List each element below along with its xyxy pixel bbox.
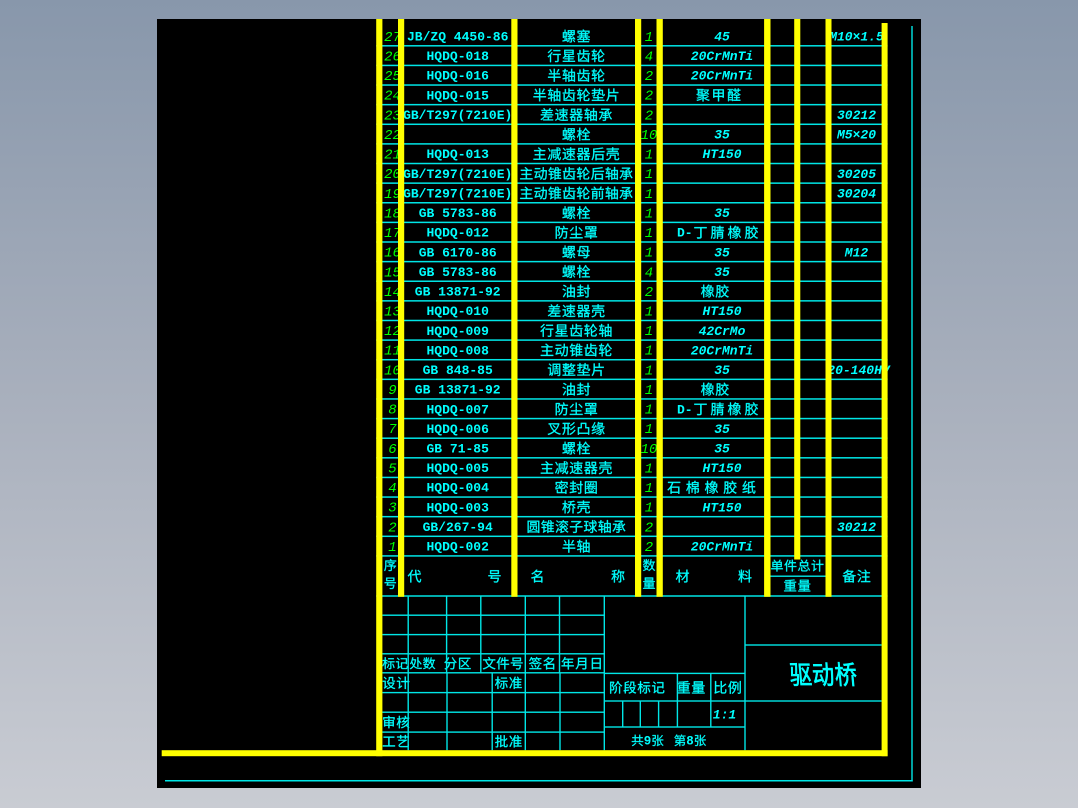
svg-text:4: 4 bbox=[645, 49, 653, 65]
svg-text:35: 35 bbox=[714, 422, 730, 437]
svg-text:GB 13871-92: GB 13871-92 bbox=[415, 383, 501, 398]
svg-text:4: 4 bbox=[645, 265, 653, 281]
svg-text:HQDQ-007: HQDQ-007 bbox=[426, 402, 488, 417]
svg-text:30205: 30205 bbox=[837, 167, 876, 182]
svg-text:GB 6170-86: GB 6170-86 bbox=[419, 245, 497, 260]
svg-text:HT150: HT150 bbox=[702, 304, 741, 319]
svg-text:10: 10 bbox=[641, 128, 658, 144]
svg-text:8: 8 bbox=[686, 735, 694, 749]
svg-text:1: 1 bbox=[645, 481, 653, 497]
svg-text:1: 1 bbox=[645, 187, 653, 203]
svg-text:2: 2 bbox=[645, 285, 653, 301]
svg-text:1: 1 bbox=[645, 383, 653, 399]
svg-text:20CrMnTi: 20CrMnTi bbox=[691, 343, 753, 358]
svg-text:HT150: HT150 bbox=[702, 500, 741, 515]
svg-text:GB 71-85: GB 71-85 bbox=[426, 442, 489, 457]
svg-text:20CrMnTi: 20CrMnTi bbox=[691, 49, 753, 64]
svg-text:1: 1 bbox=[645, 167, 653, 183]
svg-text:D-: D- bbox=[677, 402, 693, 417]
svg-text:M5×20: M5×20 bbox=[836, 128, 876, 143]
svg-text:GB/T297(7210E): GB/T297(7210E) bbox=[403, 167, 512, 182]
svg-text:GB/267-94: GB/267-94 bbox=[423, 520, 493, 535]
svg-text:35: 35 bbox=[714, 245, 730, 260]
svg-text:HQDQ-015: HQDQ-015 bbox=[426, 88, 489, 103]
svg-text:9: 9 bbox=[388, 383, 396, 399]
svg-text:2: 2 bbox=[388, 520, 396, 536]
svg-text:3: 3 bbox=[388, 501, 396, 517]
svg-text:20CrMnTi: 20CrMnTi bbox=[691, 69, 753, 84]
svg-text:M12: M12 bbox=[844, 245, 869, 260]
svg-text:1: 1 bbox=[645, 403, 653, 419]
svg-text:HQDQ-002: HQDQ-002 bbox=[426, 540, 489, 555]
svg-text:1: 1 bbox=[645, 422, 653, 438]
svg-text:HQDQ-013: HQDQ-013 bbox=[426, 147, 489, 162]
svg-text:6: 6 bbox=[388, 442, 396, 458]
svg-text:35: 35 bbox=[714, 128, 730, 143]
svg-text:HQDQ-009: HQDQ-009 bbox=[426, 324, 489, 339]
svg-text:45: 45 bbox=[714, 30, 730, 45]
svg-text:2: 2 bbox=[645, 108, 653, 124]
svg-text:35: 35 bbox=[714, 265, 730, 280]
svg-text:1: 1 bbox=[645, 206, 653, 222]
svg-text:30204: 30204 bbox=[837, 186, 876, 201]
svg-text:1: 1 bbox=[645, 30, 653, 46]
svg-text:GB 5783-86: GB 5783-86 bbox=[419, 265, 497, 280]
svg-text:30212: 30212 bbox=[837, 108, 876, 123]
svg-text:GB 13871-92: GB 13871-92 bbox=[415, 285, 501, 300]
svg-text:GB/T297(7210E): GB/T297(7210E) bbox=[403, 108, 512, 123]
svg-text:2: 2 bbox=[645, 540, 653, 556]
svg-text:HQDQ-005: HQDQ-005 bbox=[426, 461, 489, 476]
svg-text:4: 4 bbox=[388, 481, 396, 497]
svg-text:1: 1 bbox=[645, 363, 653, 379]
svg-text:1: 1 bbox=[645, 148, 653, 164]
svg-text:8: 8 bbox=[388, 403, 396, 419]
svg-text:HT150: HT150 bbox=[702, 147, 741, 162]
svg-text:35: 35 bbox=[714, 363, 730, 378]
svg-text:7: 7 bbox=[388, 422, 397, 438]
svg-text:HQDQ-010: HQDQ-010 bbox=[426, 304, 489, 319]
svg-text:1: 1 bbox=[645, 344, 653, 360]
svg-text:20CrMnTi: 20CrMnTi bbox=[691, 540, 753, 555]
svg-text:GB 5783-86: GB 5783-86 bbox=[419, 206, 497, 221]
svg-text:2: 2 bbox=[645, 89, 653, 105]
svg-text:35: 35 bbox=[714, 206, 730, 221]
svg-text:5: 5 bbox=[388, 462, 397, 478]
svg-text:1:1: 1:1 bbox=[713, 708, 736, 723]
svg-text:1: 1 bbox=[645, 246, 653, 262]
svg-text:10: 10 bbox=[641, 442, 658, 458]
svg-text:D-: D- bbox=[677, 226, 693, 241]
svg-text:1: 1 bbox=[388, 540, 396, 556]
svg-text:42CrMo: 42CrMo bbox=[699, 324, 746, 339]
svg-text:2: 2 bbox=[645, 520, 653, 536]
svg-text:HQDQ-018: HQDQ-018 bbox=[426, 49, 489, 64]
svg-text:M10×1.5: M10×1.5 bbox=[828, 30, 884, 45]
svg-text:GB 848-85: GB 848-85 bbox=[423, 363, 493, 378]
svg-text:1: 1 bbox=[645, 324, 653, 340]
svg-text:HQDQ-004: HQDQ-004 bbox=[426, 481, 489, 496]
svg-text:35: 35 bbox=[714, 442, 730, 457]
svg-text:9: 9 bbox=[644, 735, 652, 749]
svg-text:1: 1 bbox=[645, 305, 653, 321]
svg-text:HQDQ-016: HQDQ-016 bbox=[426, 69, 489, 84]
svg-text:1: 1 bbox=[645, 462, 653, 478]
svg-text:HQDQ-008: HQDQ-008 bbox=[426, 343, 489, 358]
svg-text:HQDQ-012: HQDQ-012 bbox=[426, 226, 489, 241]
svg-text:HT150: HT150 bbox=[702, 461, 741, 476]
svg-text:GB/T297(7210E): GB/T297(7210E) bbox=[403, 186, 512, 201]
svg-text:30212: 30212 bbox=[837, 520, 876, 535]
svg-text:1: 1 bbox=[645, 226, 653, 242]
svg-text:JB/ZQ 4450-86: JB/ZQ 4450-86 bbox=[407, 30, 509, 45]
svg-text:20-140HV: 20-140HV bbox=[827, 363, 891, 378]
svg-text:1: 1 bbox=[645, 501, 653, 517]
svg-text:2: 2 bbox=[645, 69, 653, 85]
svg-text:HQDQ-006: HQDQ-006 bbox=[426, 422, 489, 437]
svg-text:HQDQ-003: HQDQ-003 bbox=[426, 500, 489, 515]
